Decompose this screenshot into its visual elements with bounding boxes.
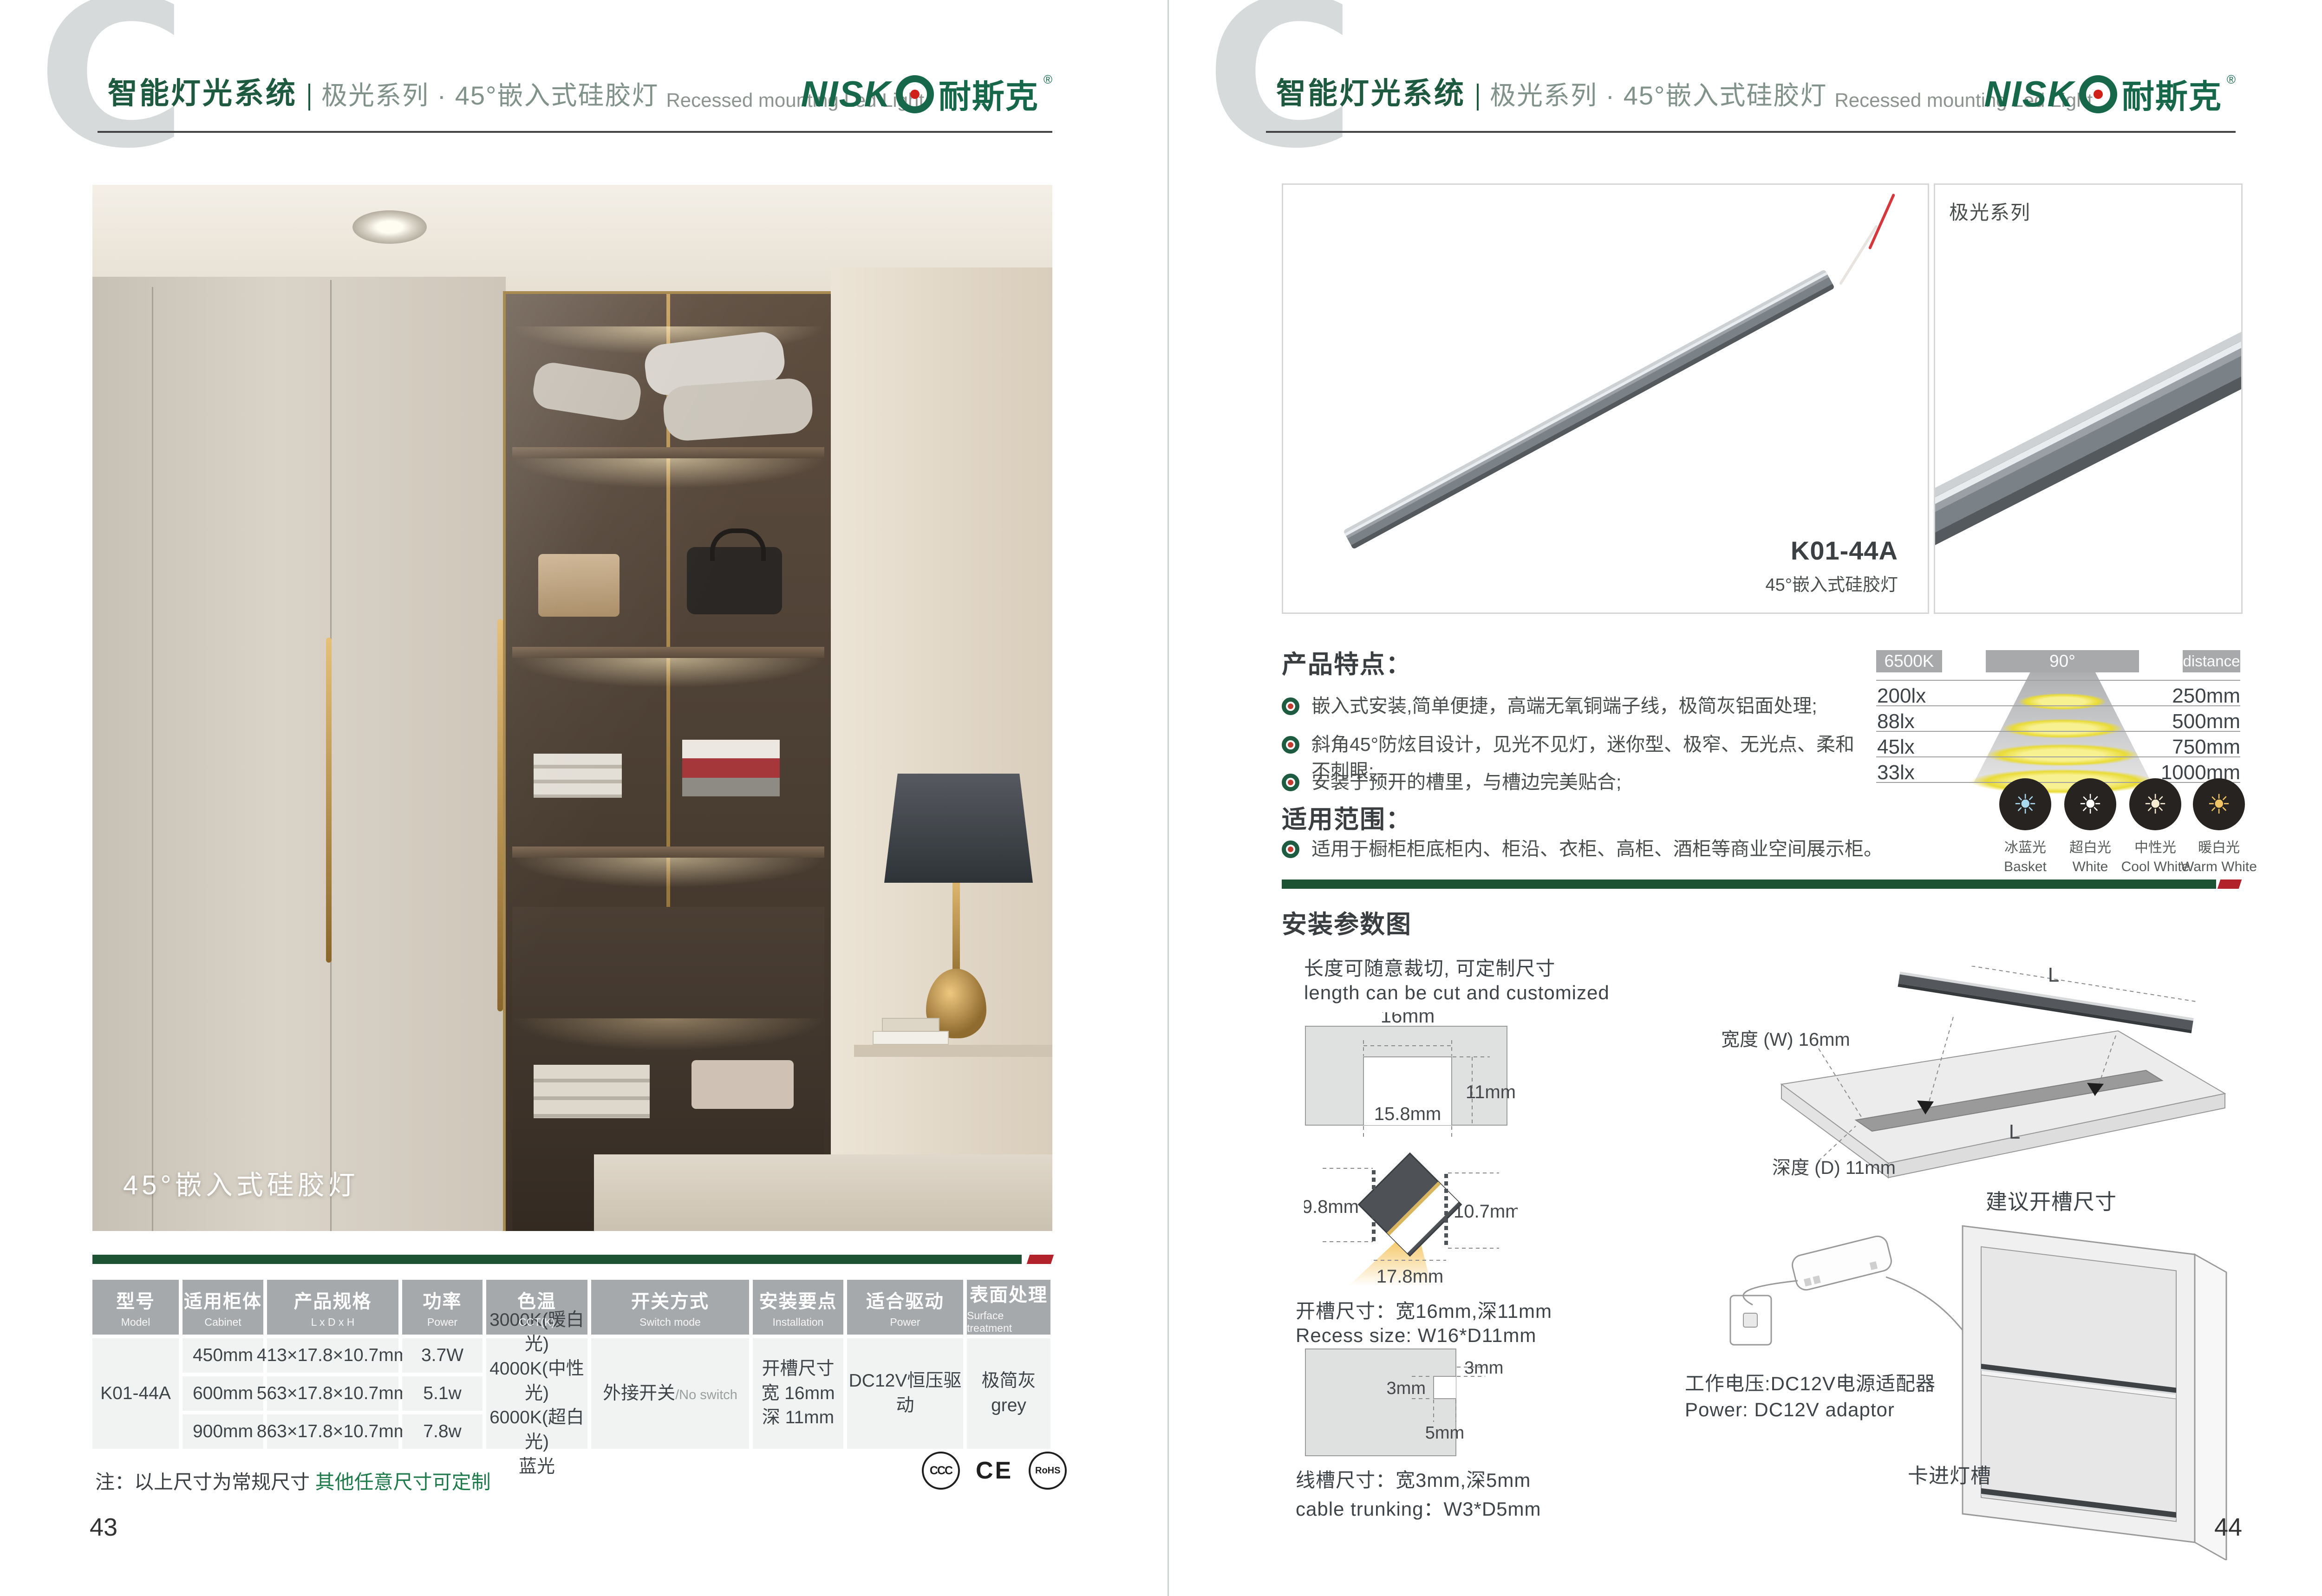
cell-model: K01-44A xyxy=(92,1338,179,1449)
recess-size-cn: 开槽尺寸：宽16mm,深11mm xyxy=(1296,1296,1552,1324)
install-section-title: 安装参数图 xyxy=(1282,904,1412,940)
lamp-shade xyxy=(884,774,1033,883)
brand-logo-latin: NISK xyxy=(801,73,891,115)
dim-L-top: L xyxy=(2048,966,2059,986)
side-table xyxy=(854,1045,1052,1057)
scope-item: 适用于橱柜柜底柜内、柜沿、衣柜、高柜、酒柜等商业空间展示柜。 xyxy=(1282,836,1932,862)
light-pool xyxy=(1986,744,2139,766)
dim-11mm: 11mm xyxy=(1466,1082,1516,1102)
note-custom-size: 其他任意尺寸可定制 xyxy=(315,1471,491,1493)
led-bar-image xyxy=(1343,269,1835,549)
page-header: 智能灯光系统 极光系列 · 45°嵌入式硅胶灯 Recessed mountin… xyxy=(1276,70,2093,112)
cell-switch: 外接开关/No switch xyxy=(591,1338,749,1449)
ice-blue-light-icon: ☀ xyxy=(1999,778,2051,830)
cut-note-en: length can be cut and customized xyxy=(1304,982,1610,1004)
rohs-icon: RoHS xyxy=(1029,1452,1067,1490)
page-gutter xyxy=(1168,0,1169,1596)
profile-detail-box: 极光系列 xyxy=(1934,183,2243,614)
registered-mark: ® xyxy=(1044,72,1052,87)
cool-white-light-icon: ☀ xyxy=(2129,778,2181,830)
dim-L-bottom: L xyxy=(2009,1120,2020,1143)
light-pool xyxy=(1970,769,2154,794)
col-header-power: 功率Power xyxy=(402,1280,483,1335)
dim-10.7mm: 10.7mm xyxy=(1454,1201,1518,1222)
power-450: 3.7W xyxy=(402,1338,483,1373)
header-system-title: 智能灯光系统 xyxy=(108,70,297,112)
brand-logo: NISK 耐斯克 ® xyxy=(801,71,1052,117)
clip-into-slot-label: 卡进灯槽 xyxy=(1908,1459,1991,1489)
brand-logo-o-icon xyxy=(2079,75,2117,113)
beam-angle-header: 90° xyxy=(1986,650,2139,672)
dim-9.8mm: 9.8mm xyxy=(1304,1197,1359,1217)
ce-icon: CE xyxy=(976,1457,1013,1485)
glass-cabinet xyxy=(506,294,831,1231)
light-color-label: 暖白光Warm White xyxy=(2168,839,2270,876)
col-header-surface: 表面处理Surface treatment xyxy=(967,1280,1050,1335)
cell-cct: 3000K(暖白光) 4000K(中性光) 6000K(超白光) 蓝光 xyxy=(486,1338,587,1449)
feature-item: 嵌入式安装,简单便捷，高端无氧铜端子线，极简灰铝面处理; xyxy=(1282,693,1858,719)
page-left: C 智能灯光系统 极光系列 · 45°嵌入式硅胶灯 Recessed mount… xyxy=(0,0,1168,1596)
board-depth-label: 深度 (D) 11mm xyxy=(1772,1158,1896,1178)
brand-logo-o-icon xyxy=(896,75,934,113)
header-series-title: 极光系列 · 45°嵌入式硅胶灯 xyxy=(321,75,659,112)
warm-white-light-icon: ☀ xyxy=(2193,778,2245,830)
distance-value: 750mm xyxy=(2172,736,2240,759)
features-title: 产品特点： xyxy=(1282,644,1412,680)
divider-bar-green xyxy=(1282,879,2216,889)
door-seam xyxy=(152,287,153,1231)
dim-15.8mm: 15.8mm xyxy=(1374,1104,1441,1124)
trunking-size-en: cable trunking：W3*D5mm xyxy=(1296,1493,1541,1522)
right-wall xyxy=(831,267,1052,1231)
cell-powers: 3.7W 5.1w 7.8w xyxy=(402,1338,483,1449)
spec-table: 型号Model 适用柜体Cabinet 产品规格L x D x H 功率Powe… xyxy=(92,1280,1052,1449)
bullet-icon xyxy=(1282,697,1299,715)
ceiling-downlight xyxy=(352,210,427,244)
cell-driver: DC12V恒压驱动 xyxy=(847,1338,963,1449)
page-right: C 智能灯光系统 极光系列 · 45°嵌入式硅胶灯 Recessed mount… xyxy=(1168,0,2322,1596)
cct-header: 6500K xyxy=(1876,650,1942,672)
brand-logo-latin: NISK xyxy=(1984,73,2074,115)
ccc-icon: CCC xyxy=(922,1452,960,1490)
header-divider xyxy=(308,84,310,111)
model-code: K01-44A xyxy=(1766,535,1898,566)
recess-size-en: Recess size: W16*D11mm xyxy=(1296,1324,1536,1347)
header-series-title: 极光系列 · 45°嵌入式硅胶灯 xyxy=(1490,75,1827,112)
dim-3mm: 3mm xyxy=(1464,1358,1503,1378)
distance-header: distance xyxy=(2183,650,2240,672)
lux-value: 33lx xyxy=(1877,761,1915,784)
power-900: 7.8w xyxy=(402,1414,483,1449)
photo-caption: 45°嵌入式硅胶灯 xyxy=(123,1163,359,1202)
glass-reflection xyxy=(506,294,831,1231)
cell-cabinet-sizes: 450mm 600mm 900mm xyxy=(183,1338,263,1449)
books xyxy=(882,1018,939,1032)
board-width-label: 宽度 (W) 16mm xyxy=(1721,1029,1850,1050)
col-header-model: 型号Model xyxy=(92,1280,179,1335)
table-note: 注：以上尺寸为常规尺寸 其他任意尺寸可定制 xyxy=(95,1466,491,1495)
distance-value: 500mm xyxy=(2172,710,2240,733)
light-pool xyxy=(2002,719,2123,738)
col-header-switch: 开关方式Switch mode xyxy=(591,1280,749,1335)
lux-value: 200lx xyxy=(1877,684,1926,708)
wardrobe-doors xyxy=(92,277,506,1231)
books xyxy=(873,1031,949,1045)
page-number-right: 44 xyxy=(2214,1513,2242,1542)
series-label: 极光系列 xyxy=(1949,197,2031,225)
cable-trunking-diagram: 3mm 3mm 5mm xyxy=(1304,1348,1504,1464)
gold-handle xyxy=(326,638,332,963)
header-system-title: 智能灯光系统 xyxy=(1276,70,1466,112)
cut-note-cn: 长度可随意裁切, 可定制尺寸 xyxy=(1304,953,1555,981)
brand-logo: NISK 耐斯克 ® xyxy=(1984,71,2236,117)
certification-marks: CCC CE RoHS xyxy=(922,1452,1067,1490)
red-wire xyxy=(1868,193,1895,249)
white-light-icon: ☀ xyxy=(2064,778,2116,830)
gold-handle xyxy=(497,619,503,1011)
lux-value: 45lx xyxy=(1877,736,1915,759)
light-pool xyxy=(2018,693,2107,710)
dim-3mm: 3mm xyxy=(1387,1379,1426,1398)
cabinet-900: 900mm xyxy=(183,1414,263,1449)
catalog-spread: C 智能灯光系统 极光系列 · 45°嵌入式硅胶灯 Recessed mount… xyxy=(0,0,2322,1596)
header-rule xyxy=(1266,131,2236,133)
spec-450: 413×17.8×10.7mm xyxy=(267,1338,398,1373)
dim-17.8mm: 17.8mm xyxy=(1376,1266,1444,1287)
profile-section-diagram: 9.8mm 10.7mm 17.8mm xyxy=(1304,1143,1518,1287)
bench xyxy=(594,1154,1052,1231)
trunking-size-cn: 线槽尺寸：宽3mm,深5mm xyxy=(1296,1465,1531,1493)
chart-gridline xyxy=(1876,680,2240,681)
page-number-left: 43 xyxy=(90,1513,117,1542)
divider-bar-red xyxy=(1027,1255,1054,1264)
cell-specs: 413×17.8×10.7mm 563×17.8×10.7mm 863×17.8… xyxy=(267,1338,398,1449)
bullet-icon xyxy=(1282,774,1299,791)
bullet-icon xyxy=(1282,736,1299,754)
recommended-recess-diagram: L 宽度 (W) 16mm 深度 (D) 11mm L xyxy=(1702,966,2241,1184)
brand-logo-cn: 耐斯克 xyxy=(939,71,1039,117)
bullet-icon xyxy=(1282,840,1299,858)
lux-value: 88lx xyxy=(1877,710,1915,733)
feature-item: 安装于预开的槽里，与槽边完美贴合; xyxy=(1282,769,1858,795)
col-header-cabinet: 适用柜体Cabinet xyxy=(183,1280,263,1335)
product-model-label: K01-44A 45°嵌入式硅胶灯 xyxy=(1766,535,1898,596)
divider-bar-red xyxy=(2218,879,2242,889)
power-600: 5.1w xyxy=(402,1376,483,1411)
dim-5mm: 5mm xyxy=(1425,1423,1464,1443)
header-rule xyxy=(98,131,1052,133)
recess-section-diagram: 16mm 11mm 15.8mm xyxy=(1304,1012,1518,1142)
col-header-installation: 安装要点Installation xyxy=(753,1280,843,1335)
cell-surface: 极简灰 grey xyxy=(967,1338,1050,1449)
power-label-cn: 工作电压:DC12V电源适配器 xyxy=(1685,1368,1936,1396)
power-label-en: Power: DC12V adaptor xyxy=(1685,1399,1895,1421)
profile-closeup-image xyxy=(1934,317,2243,560)
model-name: 45°嵌入式硅胶灯 xyxy=(1766,570,1898,596)
col-header-driver: 适合驱动Power xyxy=(847,1280,963,1335)
divider-bar-green xyxy=(92,1255,1022,1264)
col-header-spec: 产品规格L x D x H xyxy=(267,1280,398,1335)
cabinet-600: 600mm xyxy=(183,1376,263,1411)
cell-installation: 开槽尺寸 宽 16mm 深 11mm xyxy=(753,1338,843,1449)
product-photo-box: K01-44A 45°嵌入式硅胶灯 xyxy=(1282,183,1929,614)
dim-16mm: 16mm xyxy=(1381,1012,1435,1027)
header-divider xyxy=(1477,84,1479,111)
brand-logo-cn: 耐斯克 xyxy=(2122,71,2222,117)
white-wire xyxy=(1839,225,1878,285)
lifestyle-photo: 45°嵌入式硅胶灯 xyxy=(92,185,1052,1231)
distance-value: 250mm xyxy=(2172,684,2240,708)
cabinet-450: 450mm xyxy=(183,1338,263,1373)
scope-title: 适用范围： xyxy=(1282,799,1412,835)
lamp-stem xyxy=(952,883,960,971)
spec-900: 863×17.8×10.7mm xyxy=(267,1414,398,1449)
registered-mark: ® xyxy=(2227,72,2236,87)
spec-600: 563×17.8×10.7mm xyxy=(267,1376,398,1411)
